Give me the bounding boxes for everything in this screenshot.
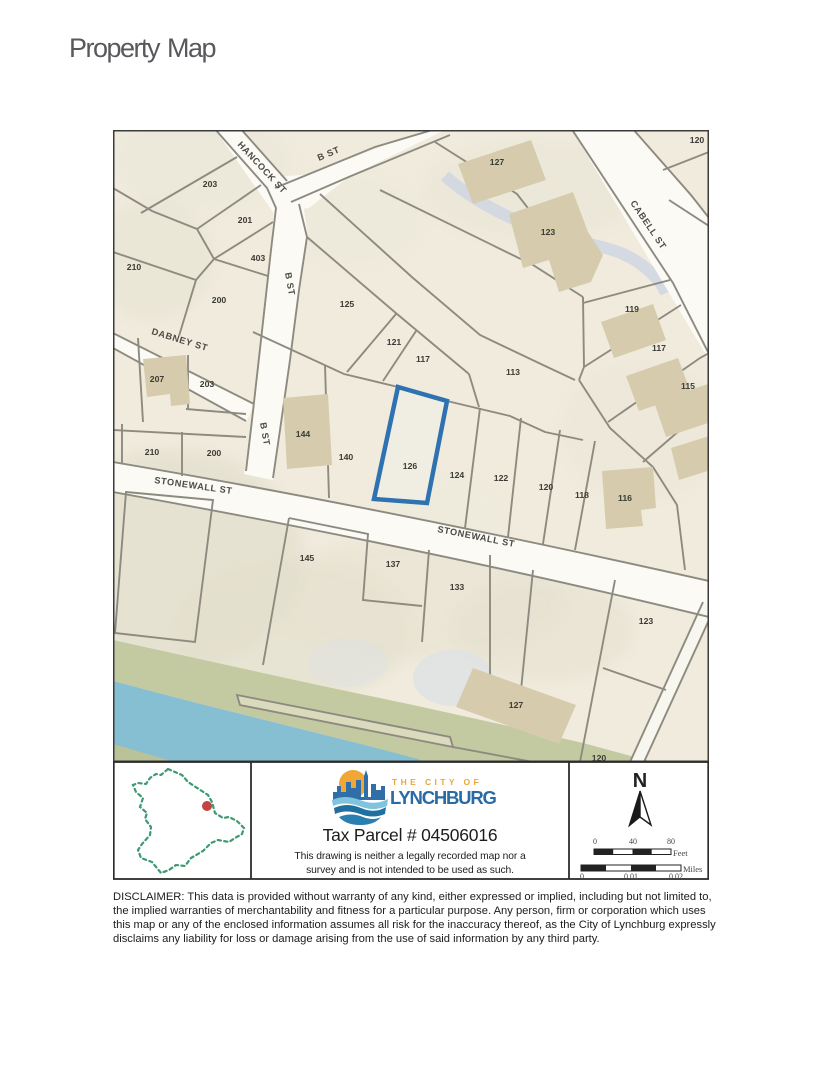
svg-text:201: 201 — [238, 215, 253, 225]
svg-text:127: 127 — [490, 157, 505, 167]
svg-text:Tax Parcel # 04506016: Tax Parcel # 04506016 — [323, 825, 498, 845]
svg-text:144: 144 — [296, 429, 311, 439]
svg-text:133: 133 — [450, 582, 465, 592]
svg-text:403: 403 — [251, 253, 266, 263]
svg-text:0.02: 0.02 — [669, 872, 683, 881]
svg-text:203: 203 — [203, 179, 218, 189]
svg-text:117: 117 — [652, 343, 666, 353]
svg-text:118: 118 — [575, 490, 589, 500]
svg-text:126: 126 — [403, 461, 418, 471]
svg-text:40: 40 — [629, 837, 637, 846]
svg-text:survey and is not intended to: survey and is not intended to be used as… — [306, 865, 514, 876]
svg-text:80: 80 — [667, 837, 675, 846]
svg-text:Feet: Feet — [673, 848, 688, 858]
svg-text:200: 200 — [207, 448, 222, 458]
svg-text:145: 145 — [300, 553, 315, 563]
svg-text:113: 113 — [506, 367, 520, 377]
svg-text:116: 116 — [618, 493, 632, 503]
svg-text:0: 0 — [593, 837, 597, 846]
svg-text:120: 120 — [539, 482, 554, 492]
svg-text:137: 137 — [386, 559, 401, 569]
svg-text:117: 117 — [416, 354, 430, 364]
svg-text:125: 125 — [340, 299, 355, 309]
svg-text:N: N — [633, 770, 647, 792]
svg-text:210: 210 — [145, 447, 160, 457]
svg-text:THE CITY OF: THE CITY OF — [392, 777, 482, 787]
svg-text:115: 115 — [681, 381, 695, 391]
svg-text:140: 140 — [339, 452, 354, 462]
svg-text:0.01: 0.01 — [624, 872, 638, 881]
svg-text:123: 123 — [639, 616, 654, 626]
svg-text:200: 200 — [212, 295, 227, 305]
svg-text:210: 210 — [127, 262, 142, 272]
svg-text:122: 122 — [494, 473, 509, 483]
svg-text:0: 0 — [580, 872, 584, 881]
svg-text:207: 207 — [150, 374, 165, 384]
svg-text:120: 120 — [690, 135, 705, 145]
svg-text:121: 121 — [387, 337, 402, 347]
svg-text:124: 124 — [450, 470, 465, 480]
svg-text:127: 127 — [509, 700, 524, 710]
svg-text:LYNCHBURG: LYNCHBURG — [390, 787, 497, 808]
svg-text:119: 119 — [625, 304, 639, 314]
svg-text:Miles: Miles — [683, 864, 702, 874]
svg-text:This drawing is neither a lega: This drawing is neither a legally record… — [294, 851, 526, 862]
svg-text:203: 203 — [200, 379, 215, 389]
svg-text:123: 123 — [541, 227, 556, 237]
